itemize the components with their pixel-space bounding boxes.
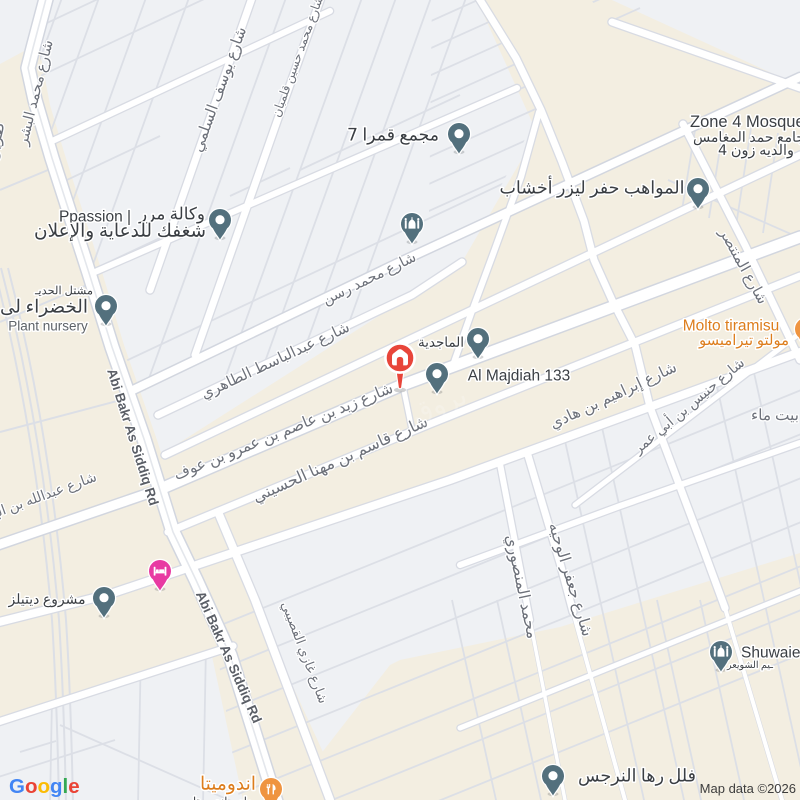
svg-text:Al Majdiah 133: Al Majdiah 133 xyxy=(468,367,571,384)
svg-text:Shuwaier: Shuwaier xyxy=(741,644,800,661)
svg-text:Google: Google xyxy=(9,775,80,798)
svg-text:Zone 4 Mosque: Zone 4 Mosque xyxy=(690,113,800,131)
svg-text:Molto tiramisu: Molto tiramisu xyxy=(683,317,779,334)
svg-text:Map data ©2026: Map data ©2026 xyxy=(700,781,796,796)
svg-text:Plant nursery: Plant nursery xyxy=(8,319,88,334)
